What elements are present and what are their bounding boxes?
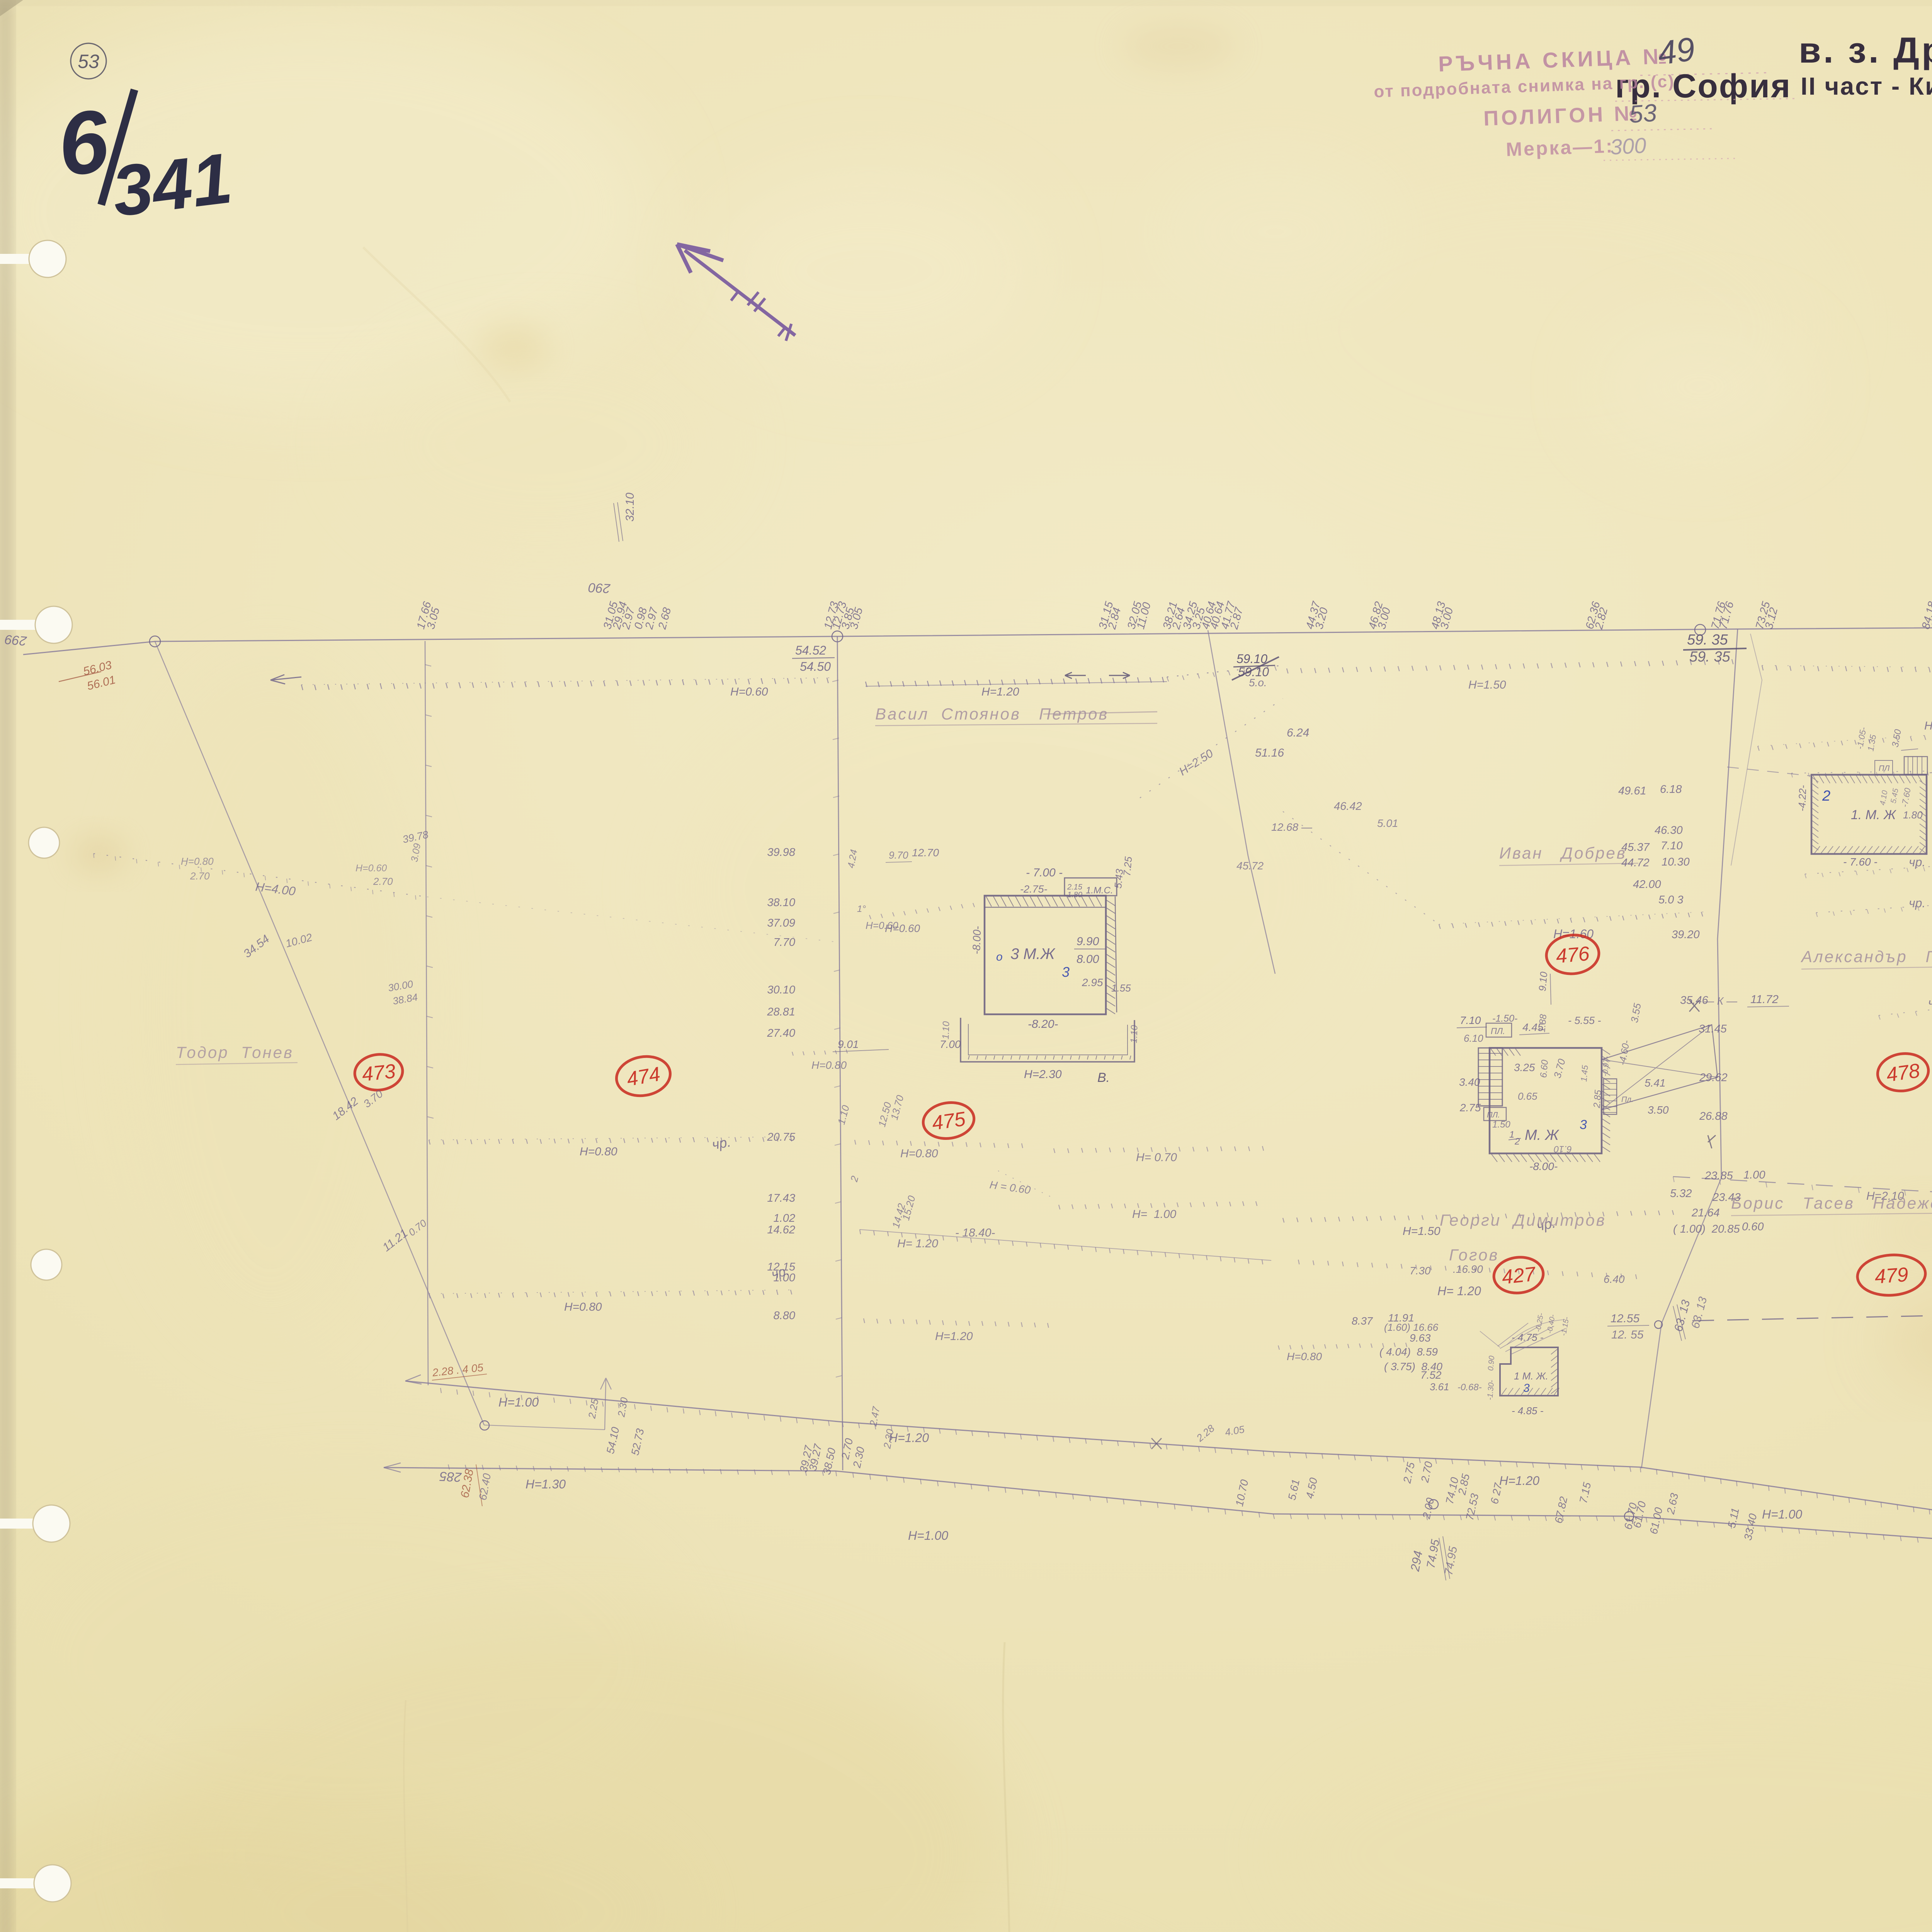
svg-text:7.70: 7.70 (774, 936, 795, 949)
svg-text:21.64: 21.64 (1691, 1207, 1720, 1219)
svg-text:12. 55: 12. 55 (1611, 1328, 1644, 1341)
svg-text:44.72: 44.72 (1621, 857, 1650, 869)
svg-text:Н=0.80: Н=0.80 (181, 855, 214, 867)
svg-text:6.10: 6.10 (1464, 1032, 1483, 1044)
svg-text:427: 427 (1501, 1263, 1537, 1289)
svg-text:8.00: 8.00 (1077, 953, 1099, 966)
svg-text:Н=1.30: Н=1.30 (526, 1477, 566, 1491)
svg-text:-1.50-: -1.50- (1492, 1013, 1517, 1024)
svg-text:В.: В. (1097, 1070, 1110, 1085)
svg-text:9.90: 9.90 (1077, 935, 1099, 948)
svg-text:7.25: 7.25 (1121, 856, 1134, 877)
svg-text:6.18: 6.18 (1660, 783, 1682, 796)
svg-text:- 7.00 -: - 7.00 - (1026, 866, 1063, 879)
svg-text:Н=1.20: Н=1.20 (1499, 1474, 1539, 1488)
svg-text:1.02: 1.02 (774, 1212, 795, 1225)
svg-text:ПЛ.: ПЛ. (1487, 1111, 1500, 1119)
svg-text:27.40: 27.40 (767, 1027, 795, 1039)
svg-text:в. з. Драгалевци: в. з. Драгалевци (1799, 30, 1932, 70)
svg-text:1°: 1° (857, 904, 866, 914)
svg-text:Н=1.50: Н=1.50 (1468, 679, 1506, 691)
svg-text:1.55: 1.55 (1111, 982, 1131, 994)
svg-text:9.63: 9.63 (1410, 1332, 1431, 1344)
svg-text:2.85: 2.85 (1592, 1089, 1604, 1109)
svg-text:8.37: 8.37 (1352, 1315, 1373, 1327)
svg-text:299: 299 (4, 632, 28, 648)
svg-text:ПЛ: ПЛ (1879, 764, 1889, 773)
svg-text:0.65: 0.65 (1518, 1090, 1537, 1102)
svg-text:54.50: 54.50 (800, 660, 831, 673)
svg-text:Н=1.00: Н=1.00 (908, 1529, 948, 1543)
svg-text:20.75: 20.75 (767, 1131, 795, 1143)
svg-text:45.72: 45.72 (1236, 860, 1264, 872)
svg-text:чр: чр (1928, 996, 1932, 1010)
svg-text:11.72: 11.72 (1750, 993, 1779, 1006)
svg-text:Мерка—1:: Мерка—1: (1505, 135, 1614, 160)
svg-text:Н=2.30: Н=2.30 (1024, 1068, 1062, 1081)
svg-text:Н=1.50: Н=1.50 (1403, 1225, 1440, 1238)
svg-text:Александър Гоядшиев: Александър Гоядшиев (1800, 947, 1932, 966)
svg-text:5.0 3: 5.0 3 (1658, 894, 1684, 906)
svg-text:Георги Димитров: Георги Димитров (1440, 1211, 1606, 1229)
svg-text:Борис Тасев Надежда Тасе: Борис Тасев Надежда Тасева (1731, 1194, 1932, 1212)
svg-text:ІІ част - Киноцентъра: ІІ част - Киноцентъра (1801, 72, 1932, 100)
svg-text:59. 35: 59. 35 (1687, 632, 1728, 648)
svg-text:30.10: 30.10 (767, 984, 795, 996)
svg-text:5.32: 5.32 (1670, 1187, 1692, 1200)
svg-text:6.24: 6.24 (1287, 726, 1309, 739)
svg-text:23.43: 23.43 (1712, 1191, 1741, 1204)
svg-text:1.00: 1.00 (774, 1272, 795, 1284)
svg-text:1.М.С.: 1.М.С. (1086, 885, 1113, 896)
svg-text:9.01: 9.01 (838, 1038, 859, 1050)
svg-text:М. Ж: М. Ж (1525, 1127, 1560, 1143)
svg-text:- 5.55 -: - 5.55 - (1568, 1015, 1601, 1026)
svg-text:45.37: 45.37 (1621, 841, 1650, 854)
svg-text:473: 473 (361, 1060, 396, 1086)
svg-text:2.15: 2.15 (1067, 883, 1083, 891)
svg-text:1.10: 1.10 (940, 1021, 952, 1039)
svg-text:-8.00-: -8.00- (970, 926, 983, 954)
svg-text:59.10: 59.10 (1236, 652, 1267, 666)
svg-text:1.10: 1.10 (1129, 1025, 1140, 1043)
svg-text:475: 475 (930, 1108, 967, 1135)
svg-text:479: 479 (1874, 1264, 1909, 1288)
svg-text:Н=1.00: Н=1.00 (498, 1395, 539, 1409)
svg-text:17.43: 17.43 (767, 1192, 795, 1204)
svg-text:2.70: 2.70 (190, 870, 210, 882)
svg-text:-8.00-: -8.00- (1529, 1160, 1558, 1172)
svg-text:39.20: 39.20 (1672, 929, 1700, 941)
svg-text:Н= 1.20: Н= 1.20 (1437, 1284, 1481, 1298)
svg-text:341: 341 (108, 138, 236, 232)
svg-text:49: 49 (1655, 30, 1697, 72)
svg-text:26.88: 26.88 (1699, 1110, 1728, 1122)
svg-text:12.55: 12.55 (1611, 1312, 1639, 1325)
svg-text:54.52: 54.52 (795, 643, 826, 657)
svg-text:-0.68-: -0.68- (1458, 1382, 1482, 1393)
svg-text:1.88: 1.88 (1537, 1014, 1549, 1033)
svg-text:Н=0.60: Н=0.60 (730, 685, 768, 698)
svg-text:3: 3 (1062, 964, 1070, 980)
svg-text:3.40: 3.40 (1459, 1076, 1480, 1088)
svg-text:Иван Добрев: Иван Добрев (1499, 844, 1627, 862)
svg-text:чр.: чр. (711, 1134, 732, 1153)
svg-text:0.60: 0.60 (1742, 1221, 1764, 1233)
svg-text:300: 300 (1609, 133, 1647, 159)
svg-text:1: 1 (1509, 1129, 1514, 1140)
svg-text:7.10: 7.10 (1460, 1014, 1481, 1026)
svg-text:2.95: 2.95 (1082, 976, 1103, 988)
svg-text:53: 53 (78, 51, 99, 72)
svg-text:Н= 1.20: Н= 1.20 (897, 1237, 938, 1250)
svg-text:2: 2 (1514, 1136, 1520, 1147)
svg-text:8.80: 8.80 (774, 1310, 795, 1322)
svg-text:7.30: 7.30 (1410, 1265, 1431, 1277)
svg-text:3.61: 3.61 (1430, 1381, 1449, 1393)
svg-text:— К —: — К — (1703, 995, 1738, 1007)
svg-text:7.10: 7.10 (1661, 840, 1682, 852)
svg-text:12.68 —: 12.68 — (1271, 821, 1313, 833)
svg-text:3.50: 3.50 (1648, 1104, 1669, 1116)
svg-text:- 7.60 -: - 7.60 - (1843, 856, 1878, 868)
svg-text:Н=0.60: Н=0.60 (355, 863, 387, 874)
svg-text:Н=0.80: Н=0.80 (580, 1145, 617, 1158)
svg-text:-2.75-: -2.75- (1020, 883, 1048, 895)
svg-text:Пл.: Пл. (1621, 1095, 1633, 1104)
svg-text:1 М. Ж.: 1 М. Ж. (1514, 1370, 1548, 1382)
svg-text:Н= 1.00: Н= 1.00 (1132, 1208, 1177, 1221)
svg-text:11.91: 11.91 (1388, 1312, 1414, 1324)
svg-text:12.70: 12.70 (912, 847, 939, 859)
svg-text:чр.: чр. (1909, 855, 1925, 869)
svg-text:Гогов: Гогов (1449, 1246, 1499, 1264)
svg-text:Н=0.80: Н=0.80 (900, 1147, 938, 1160)
svg-text:чр.: чр. (1909, 896, 1925, 910)
svg-text:1.80: 1.80 (1067, 891, 1082, 899)
svg-text:46.42: 46.42 (1334, 800, 1362, 813)
svg-text:49.61: 49.61 (1618, 785, 1646, 797)
svg-text:Н=0.60: Н=0.60 (866, 920, 898, 931)
svg-text:32.10: 32.10 (624, 493, 636, 522)
svg-text:1.80: 1.80 (1903, 809, 1923, 821)
svg-text:31.45: 31.45 (1699, 1023, 1727, 1035)
svg-text:6.60: 6.60 (1538, 1059, 1550, 1078)
svg-text:1.00: 1.00 (1743, 1169, 1765, 1181)
svg-text:1. М. Ж: 1. М. Ж (1851, 808, 1896, 822)
svg-text:Н= 0.70: Н= 0.70 (1136, 1151, 1177, 1164)
svg-text:Н=1.00: Н=1.00 (1762, 1507, 1802, 1521)
svg-text:6.40: 6.40 (1604, 1273, 1625, 1285)
svg-text:53: 53 (1628, 99, 1658, 128)
svg-text:-4.22-: -4.22- (1796, 785, 1808, 811)
svg-text:1.45: 1.45 (1579, 1065, 1590, 1082)
svg-text:10.30: 10.30 (1662, 856, 1690, 868)
svg-text:46.30: 46.30 (1655, 824, 1683, 837)
svg-text:3: 3 (1523, 1382, 1530, 1395)
svg-text:476: 476 (1555, 942, 1590, 968)
svg-text:Тодор Тонев: Тодор Тонев (176, 1043, 294, 1061)
svg-text:( 1.00) 20.85: ( 1.00) 20.85 (1673, 1223, 1740, 1235)
svg-text:1.50: 1.50 (1492, 1119, 1510, 1130)
svg-text:-1.30-: -1.30- (1486, 1379, 1496, 1400)
svg-text:2.75: 2.75 (1459, 1102, 1481, 1114)
svg-text:ПЛ.: ПЛ. (1491, 1026, 1505, 1036)
svg-text:6.10: 6.10 (1554, 1144, 1572, 1154)
svg-text:478: 478 (1885, 1060, 1921, 1087)
svg-text:Н=1.20: Н=1.20 (981, 685, 1019, 698)
svg-text:285: 285 (439, 1469, 463, 1485)
svg-text:Н=0.80: Н=0.80 (564, 1301, 602, 1313)
svg-text:.16.90: .16.90 (1453, 1263, 1483, 1275)
svg-text:59. 35: 59. 35 (1689, 649, 1731, 665)
svg-text:3 М.Ж: 3 М.Ж (1010, 946, 1056, 963)
svg-text:9.10: 9.10 (1536, 971, 1549, 992)
svg-text:38.10: 38.10 (767, 896, 795, 909)
svg-text:23.85: 23.85 (1704, 1170, 1733, 1182)
svg-text:5.41: 5.41 (1645, 1077, 1666, 1089)
svg-text:Н=0.80: Н=0.80 (1287, 1350, 1322, 1362)
svg-text:3: 3 (1580, 1117, 1587, 1132)
svg-text:Н=1.00: Н=1.00 (1924, 719, 1932, 732)
svg-text:14.62: 14.62 (767, 1224, 795, 1236)
svg-text:39.98: 39.98 (767, 846, 795, 859)
svg-text:- 4.85 -: - 4.85 - (1512, 1405, 1544, 1417)
svg-text:290: 290 (588, 580, 611, 596)
svg-text:2.70: 2.70 (373, 876, 393, 887)
svg-text:0.90: 0.90 (1486, 1355, 1496, 1371)
svg-text:5.о.: 5.о. (1249, 677, 1267, 689)
svg-text:5.01: 5.01 (1377, 817, 1398, 829)
svg-text:( 4.04) 8.59: ( 4.04) 8.59 (1379, 1346, 1438, 1358)
svg-text:2: 2 (1822, 788, 1830, 804)
svg-text:9.70: 9.70 (889, 849, 908, 861)
svg-text:о: о (996, 951, 1003, 963)
svg-text:-0.97-: -0.97- (1601, 1056, 1611, 1077)
svg-text:3.25: 3.25 (1514, 1061, 1535, 1073)
svg-text:37.09: 37.09 (767, 917, 795, 929)
svg-text:51.16: 51.16 (1255, 747, 1284, 759)
svg-text:7.00: 7.00 (940, 1038, 961, 1050)
svg-text:( 3.75) 8.40: ( 3.75) 8.40 (1384, 1361, 1442, 1372)
svg-text:29.62: 29.62 (1699, 1071, 1728, 1084)
svg-text:42.00: 42.00 (1633, 878, 1661, 891)
svg-text:Н=1.20: Н=1.20 (935, 1330, 973, 1343)
svg-text:-8.20-: -8.20- (1028, 1018, 1058, 1031)
svg-text:28.81: 28.81 (767, 1006, 795, 1018)
